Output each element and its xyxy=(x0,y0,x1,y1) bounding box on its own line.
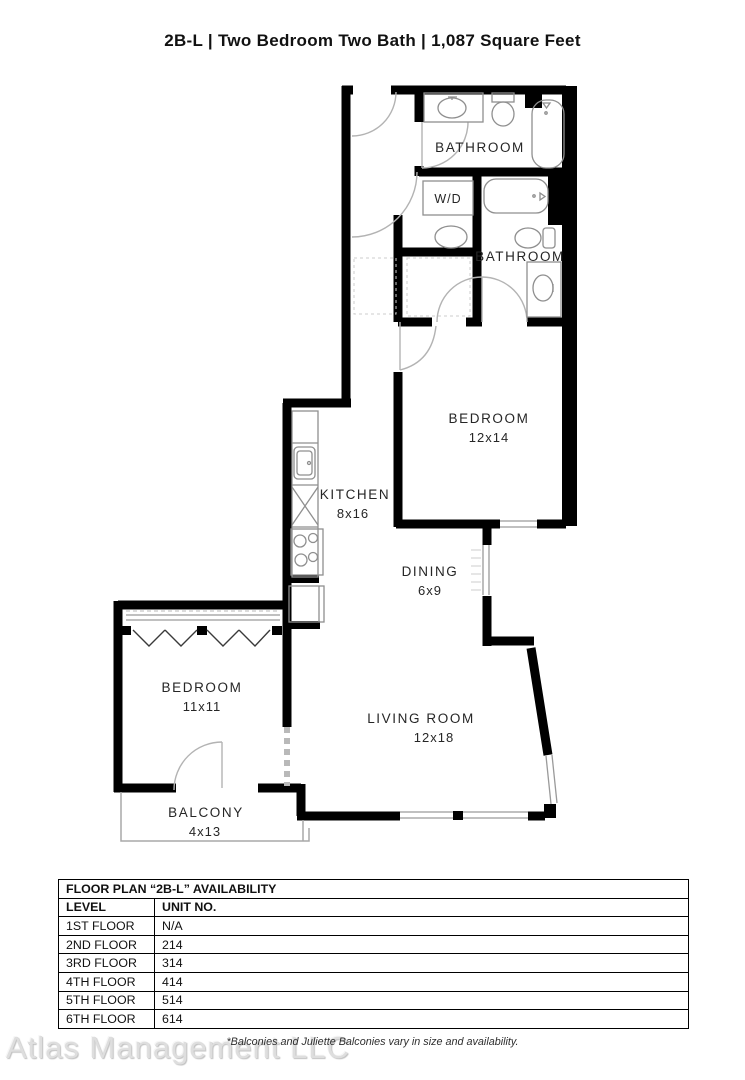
table-row: 6TH FLOOR 614 xyxy=(59,1010,689,1029)
toilet-tank-icon xyxy=(543,228,555,248)
window-mullion xyxy=(453,811,463,820)
toilet-icon xyxy=(515,228,541,248)
room-dims-kitchen: 8x16 xyxy=(337,506,369,521)
vanity-counter xyxy=(527,262,561,317)
hall-door-arc xyxy=(352,172,417,237)
faucet-icon xyxy=(308,462,311,465)
room-dims-balcony: 4x13 xyxy=(189,824,221,839)
wall xyxy=(525,86,542,108)
bedroom-window xyxy=(500,521,537,527)
unit-cell: 214 xyxy=(155,935,689,954)
counter-stub xyxy=(289,575,319,583)
balcony-disclaimer: *Balconies and Juliette Balconies vary i… xyxy=(0,1036,745,1048)
kitchen-sink-basin xyxy=(297,451,312,475)
column-header-unit: UNIT NO. xyxy=(155,898,689,917)
wall xyxy=(548,175,564,225)
level-cell: 5TH FLOOR xyxy=(59,991,155,1010)
faucet-icon xyxy=(540,193,545,200)
table-row: 2ND FLOOR 214 xyxy=(59,935,689,954)
dishwasher-icon xyxy=(292,487,318,525)
bathtub-icon xyxy=(532,100,564,168)
living-window xyxy=(400,812,453,818)
table-row: 1ST FLOOR N/A xyxy=(59,917,689,936)
table-title: FLOOR PLAN “2B-L” AVAILABILITY xyxy=(59,880,689,899)
room-label-kitchen: KITCHEN xyxy=(320,487,390,502)
casement-stub xyxy=(197,626,207,635)
room-label-bedroom-main: BEDROOM xyxy=(449,411,530,426)
angled-window xyxy=(546,755,557,804)
room-label-living-room: LIVING ROOM xyxy=(367,711,475,726)
room-label-bedroom-2: BEDROOM xyxy=(162,680,243,695)
floor-plan-sheet: 2B-L | Two Bedroom Two Bath | 1,087 Squa… xyxy=(0,0,745,1080)
table-row: 4TH FLOOR 414 xyxy=(59,972,689,991)
room-label-dining: DINING xyxy=(402,564,459,579)
column-header-level: LEVEL xyxy=(59,898,155,917)
sink-icon xyxy=(533,275,553,301)
drain-icon xyxy=(533,195,535,197)
room-label-bathroom-top: BATHROOM xyxy=(435,140,525,155)
level-cell: 2ND FLOOR xyxy=(59,935,155,954)
room-label-balcony: BALCONY xyxy=(168,805,244,820)
unit-cell: 514 xyxy=(155,991,689,1010)
table-row: 3RD FLOOR 314 xyxy=(59,954,689,973)
juliette-hatch-ticks xyxy=(471,550,481,590)
sink-icon xyxy=(438,98,466,118)
burner-icon xyxy=(309,534,318,543)
unit-cell: 314 xyxy=(155,954,689,973)
toilet-icon xyxy=(492,102,514,126)
unit-cell: 414 xyxy=(155,972,689,991)
bedroom2-window-band xyxy=(126,615,280,620)
counter-divider xyxy=(292,443,318,527)
sink-icon xyxy=(435,226,467,248)
unit-cell: N/A xyxy=(155,917,689,936)
dining-juliette-window xyxy=(483,545,489,595)
room-label-bathroom-2: BATHROOM xyxy=(475,249,565,264)
availability-table: FLOOR PLAN “2B-L” AVAILABILITY LEVEL UNI… xyxy=(58,879,689,1029)
drain-icon xyxy=(545,112,547,114)
burner-icon xyxy=(294,535,306,547)
window-layer xyxy=(126,521,557,818)
bathtub-icon xyxy=(484,179,548,213)
room-dims-bedroom-2: 11x11 xyxy=(183,699,222,714)
level-cell: 1ST FLOOR xyxy=(59,917,155,936)
unit-cell: 614 xyxy=(155,1010,689,1029)
casement-stub xyxy=(272,626,282,635)
level-cell: 3RD FLOOR xyxy=(59,954,155,973)
room-dims-bedroom-main: 12x14 xyxy=(469,430,509,445)
casement-stub xyxy=(121,626,131,635)
level-cell: 4TH FLOOR xyxy=(59,972,155,991)
bedroom2-door-arc xyxy=(174,742,222,790)
faucet-icon xyxy=(543,103,550,108)
living-window xyxy=(463,812,528,818)
level-cell: 6TH FLOOR xyxy=(59,1010,155,1029)
bedroom-door-arc xyxy=(400,326,436,370)
table-row: 5TH FLOOR 514 xyxy=(59,991,689,1010)
room-label-wd: W/D xyxy=(434,192,461,206)
wall xyxy=(544,804,556,818)
room-dims-dining: 6x9 xyxy=(418,583,442,598)
bathroom2-door-arc xyxy=(482,277,527,322)
burner-icon xyxy=(309,553,318,562)
table-header-row: LEVEL UNIT NO. xyxy=(59,898,689,917)
room-labels: BATHROOM W/D BATHROOM BEDROOM 12x14 KITC… xyxy=(162,140,565,839)
room-dims-living-room: 12x18 xyxy=(414,730,454,745)
table-title-row: FLOOR PLAN “2B-L” AVAILABILITY xyxy=(59,880,689,899)
entry-door-arc xyxy=(352,92,396,136)
burner-icon xyxy=(295,554,307,566)
